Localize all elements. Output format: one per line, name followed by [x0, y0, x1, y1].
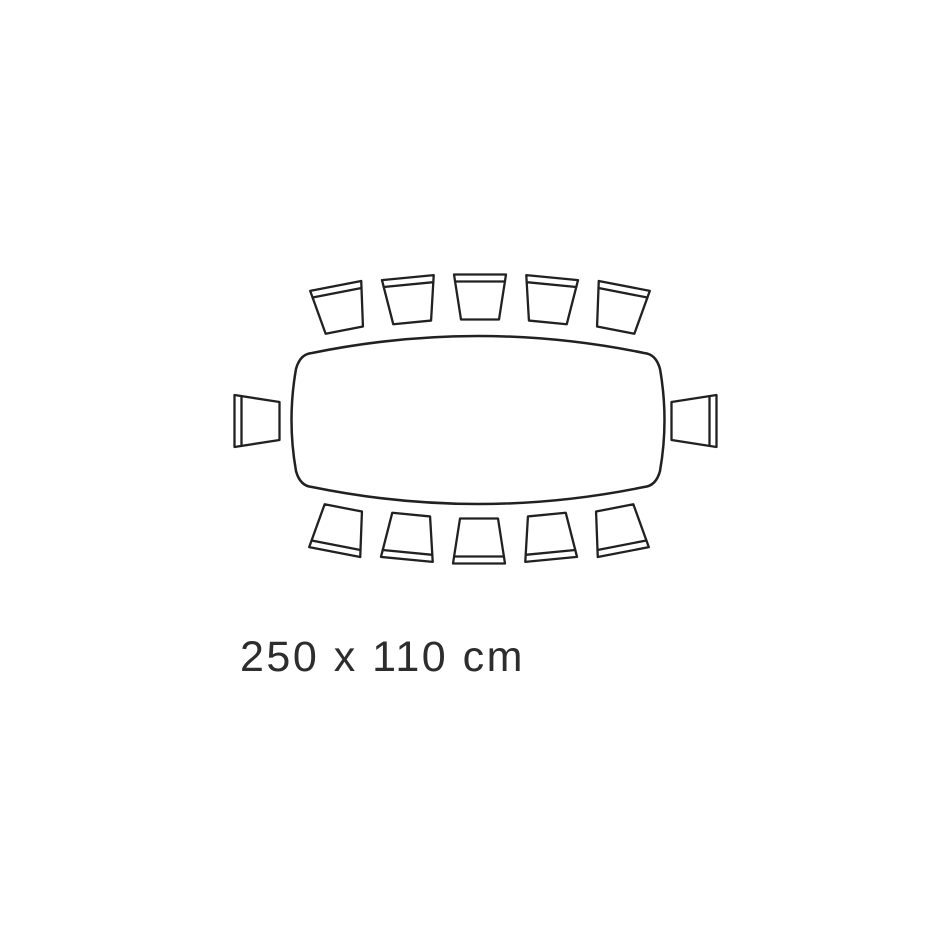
- chair-bottom-5: [589, 503, 649, 557]
- chair-top-5: [590, 281, 650, 335]
- chair-top-4: [522, 275, 578, 325]
- dimensions-label: 250 x 110 cm: [240, 636, 525, 679]
- product-dimension-diagram: 250 x 110 cm: [0, 0, 950, 950]
- chair-backrest-line: [527, 282, 577, 287]
- chair-backrest-line: [526, 550, 576, 555]
- chair-bottom-3: [453, 519, 505, 564]
- table-top-outline: [292, 336, 665, 504]
- chair-top-1: [310, 281, 370, 335]
- table-seating-diagram: [0, 0, 950, 950]
- chair-end-left: [235, 395, 280, 447]
- chair-bottom-4: [521, 512, 577, 562]
- chair-end-right: [672, 395, 717, 447]
- chair-bottom-2: [381, 512, 437, 562]
- chair-backrest-line: [384, 282, 434, 287]
- chair-top-3: [454, 275, 506, 320]
- chair-bottom-1: [309, 503, 369, 557]
- chair-backrest-line: [383, 550, 433, 555]
- chair-top-2: [382, 275, 438, 325]
